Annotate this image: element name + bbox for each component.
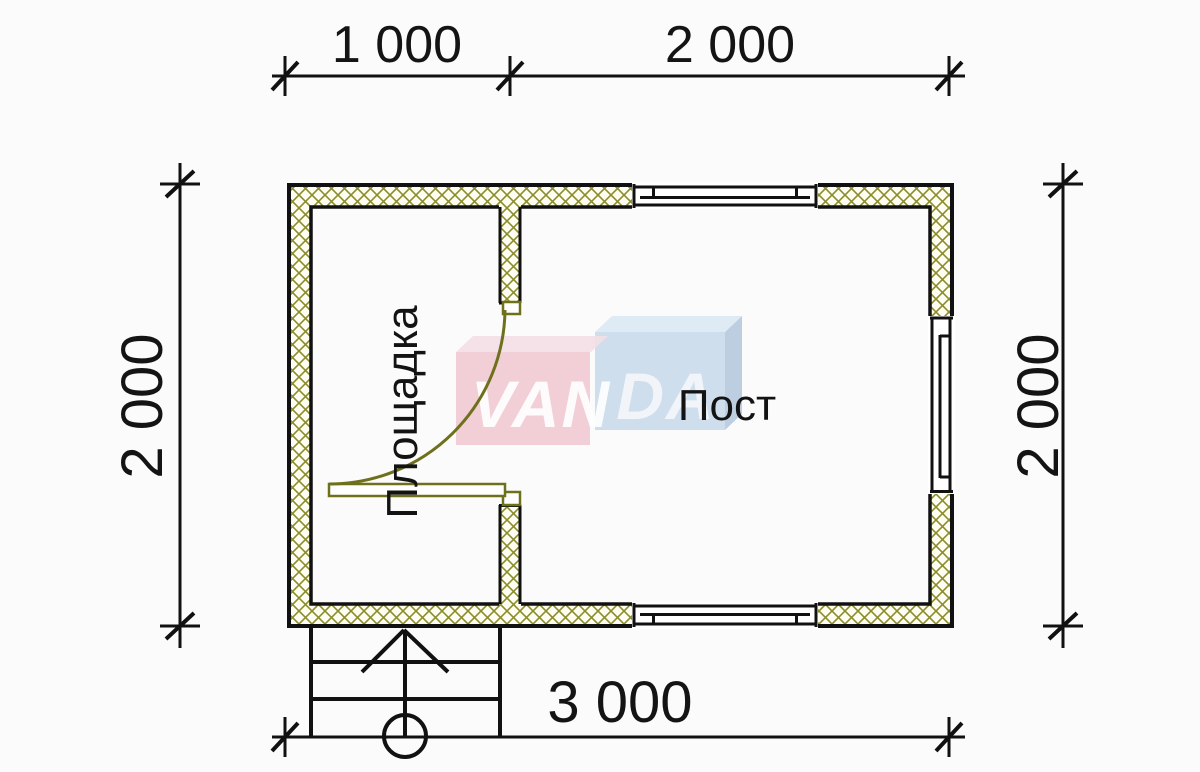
window-bottom — [632, 602, 818, 629]
partition-lower-hatch — [499, 504, 521, 608]
window-right — [928, 316, 955, 494]
dimension-label-top-left: 1 000 — [332, 16, 462, 74]
window-top — [632, 182, 818, 209]
partition-upper-hatch — [499, 203, 521, 304]
dimension-label-right: 2 000 — [1006, 333, 1071, 478]
room-label-post: Пост — [678, 381, 776, 430]
floor-plan-canvas: VAN DA 1 000 2 000 2 000 2 000 3 000 Пло… — [0, 0, 1200, 772]
dimension-label-left: 2 000 — [110, 333, 175, 478]
room-label-platform: Площадка — [378, 305, 427, 519]
dimension-label-top-right: 2 000 — [665, 16, 795, 74]
floor-plan-drawing: VAN DA 1 000 2 000 2 000 2 000 3 000 Пло… — [0, 0, 1200, 772]
logo-pink-box-top-face — [456, 336, 608, 352]
dimension-label-bottom: 3 000 — [547, 670, 692, 735]
logo-blue-box-top-face — [595, 316, 742, 332]
